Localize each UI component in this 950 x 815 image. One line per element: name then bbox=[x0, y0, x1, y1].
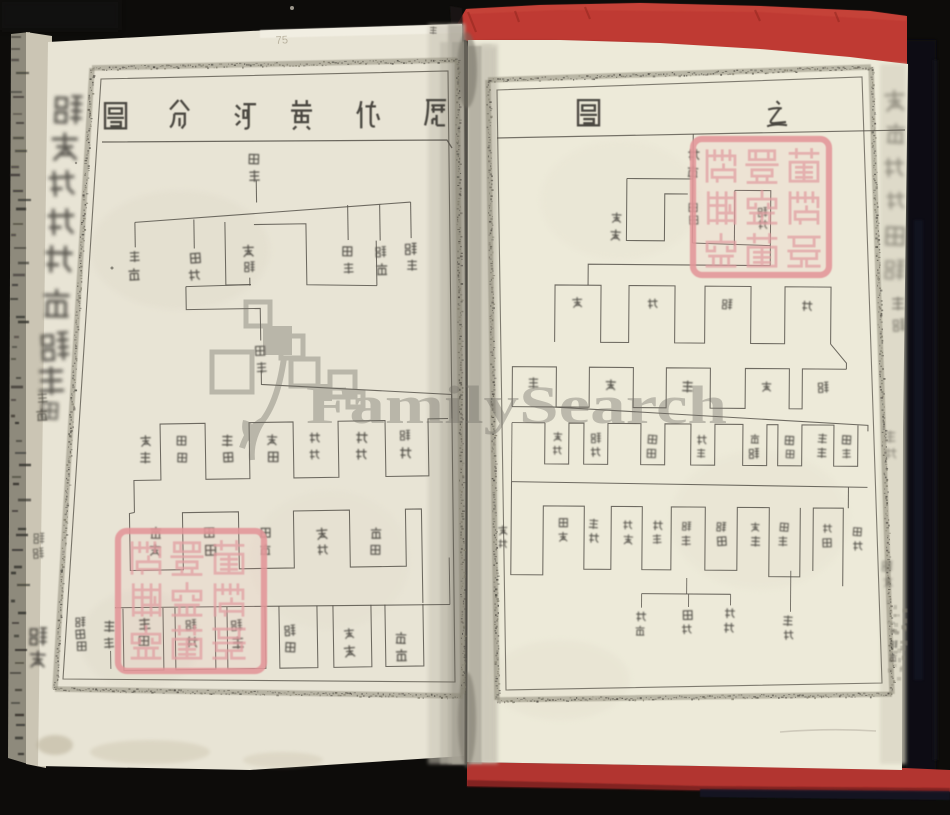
svg-text:75: 75 bbox=[275, 34, 288, 47]
svg-text:FamilySearch: FamilySearch bbox=[306, 375, 727, 435]
